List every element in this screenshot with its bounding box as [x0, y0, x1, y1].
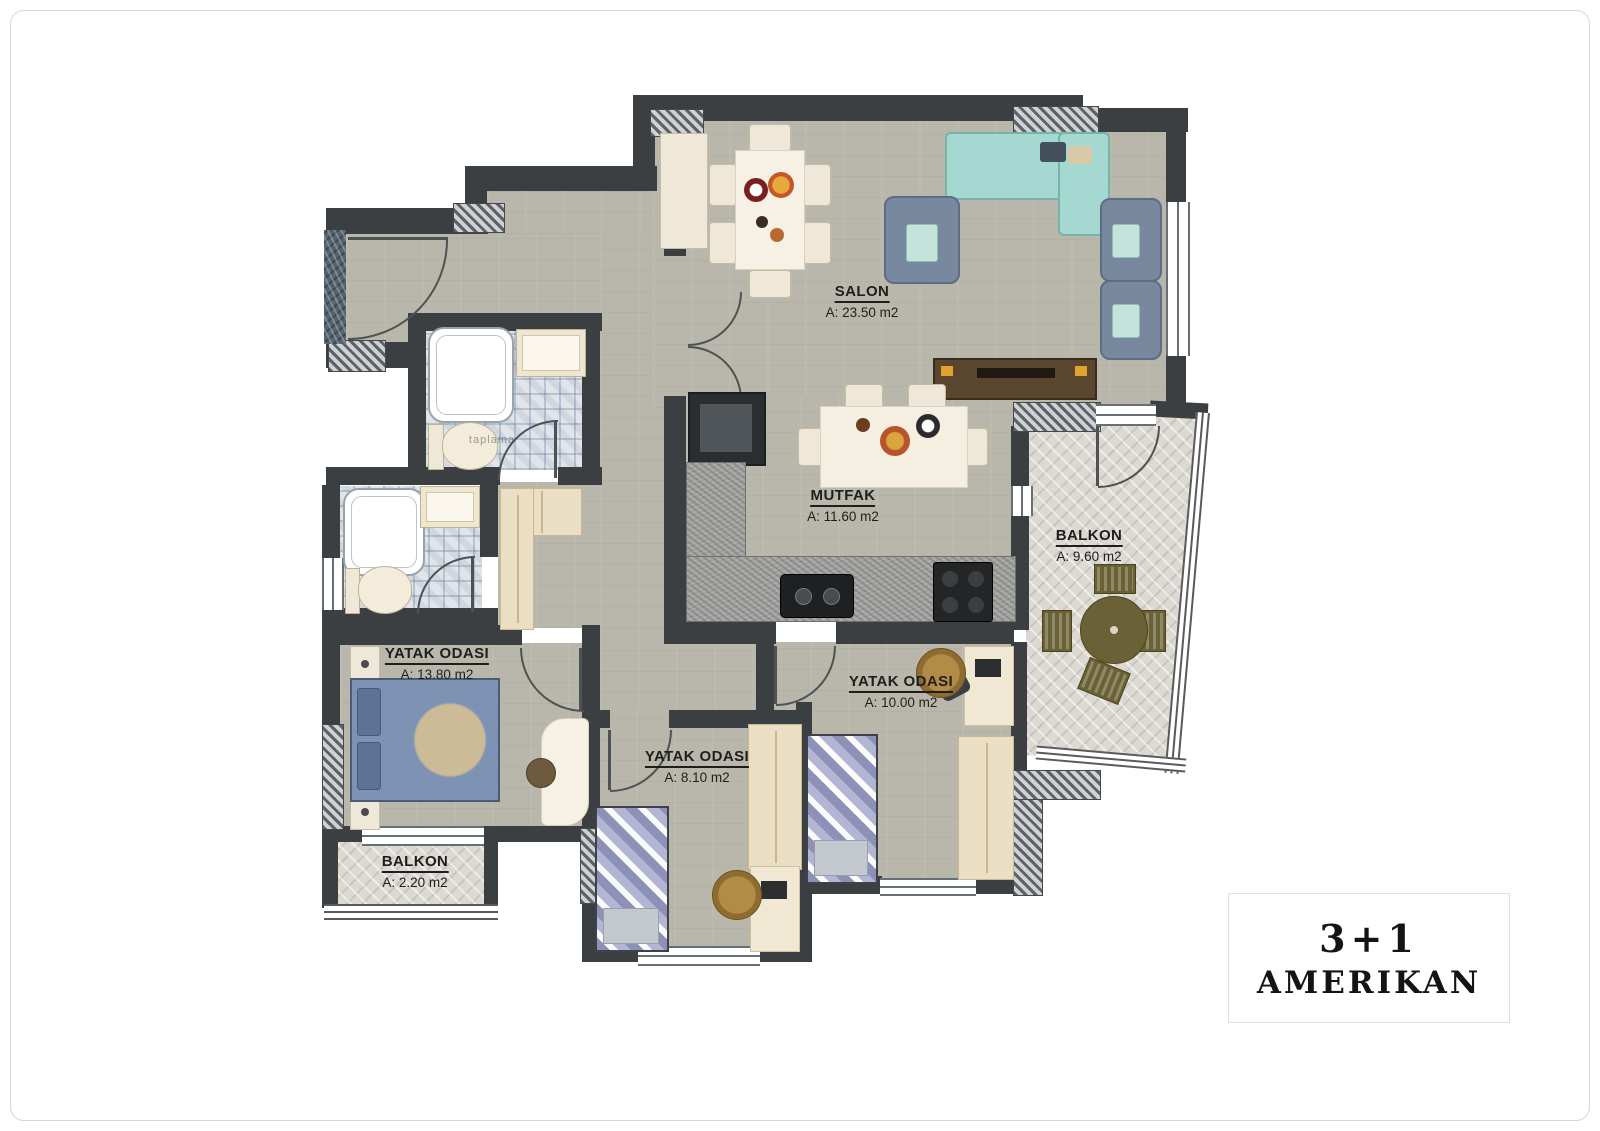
table-cup — [756, 216, 768, 228]
room-label-yatak-1: YATAK ODASI A: 13.80 m2 — [385, 645, 489, 682]
bathroom-sink — [420, 486, 480, 528]
room-label-yatak-3: YATAK ODASI A: 8.10 m2 — [645, 748, 749, 785]
wall-corridor-right-b — [664, 396, 686, 622]
balcony-chair — [1094, 564, 1136, 594]
room-name: YATAK ODASI — [849, 673, 953, 693]
wall-balcony-left-a — [1011, 426, 1029, 486]
desk-stool — [526, 758, 556, 788]
armchair — [1100, 198, 1162, 282]
double-bed — [350, 678, 500, 802]
column-hatch-bedroom1-left — [322, 724, 344, 830]
wall-right-upper — [1166, 126, 1186, 204]
tv-console-knob — [1075, 366, 1087, 376]
room-label-yatak-2: YATAK ODASI A: 10.00 m2 — [849, 673, 953, 710]
floor-plan-page: SALON A: 23.50 m2 MUTFAK A: 11.60 m2 BAL… — [0, 0, 1600, 1131]
wall-bedroom2-entry-stub — [756, 642, 774, 712]
bed-pillow — [357, 742, 381, 790]
kitchen-cup — [856, 418, 870, 432]
bed-pillow — [814, 840, 868, 876]
bathroom1-door-leaf — [554, 420, 557, 478]
wall-bathroom1-left — [408, 329, 426, 485]
laptop — [761, 881, 787, 899]
balcony-chair — [1042, 610, 1072, 652]
nightstand — [350, 646, 380, 682]
balcony-door-leaf — [1096, 426, 1099, 486]
column-hatch-top-right — [1013, 106, 1099, 134]
room-label-mutfak: MUTFAK A: 11.60 m2 — [807, 487, 879, 524]
railing-balcony-small — [324, 904, 498, 920]
wall-balcony-small-right — [484, 842, 498, 908]
sofa-pillow — [1040, 142, 1066, 162]
room-area: A: 9.60 m2 — [1056, 549, 1123, 564]
table-plate — [744, 178, 768, 202]
window-bathroom2-left — [322, 558, 344, 610]
room-name: BALKON — [1056, 527, 1123, 547]
wall-bedroom3-top-a — [598, 710, 610, 728]
sideboard — [660, 133, 708, 249]
toilet — [358, 566, 412, 614]
room-name: YATAK ODASI — [385, 645, 489, 665]
kitchen-sink — [780, 574, 854, 618]
armchair-cushion — [906, 224, 938, 262]
shower-tray — [343, 488, 425, 576]
window-balcony-top — [1096, 404, 1156, 426]
column-hatch-balcony-bottom-h — [1013, 770, 1101, 800]
plan-title-box: 3+1 AMERIKAN — [1228, 893, 1510, 1023]
bedroom1-door-leaf — [579, 648, 582, 710]
bed-pillow — [603, 908, 659, 944]
single-bed — [595, 806, 669, 952]
sink-basin — [795, 588, 812, 605]
room-label-balkon-large: BALKON A: 9.60 m2 — [1056, 527, 1123, 564]
tv-console-knob — [941, 366, 953, 376]
dining-chair — [709, 164, 737, 206]
balcony-table — [1080, 596, 1148, 664]
dining-chair — [709, 222, 737, 264]
balcony-table-center — [1110, 626, 1118, 634]
window-balcony-left — [1011, 486, 1033, 516]
fruit-plate — [768, 172, 794, 198]
bathroom2-door-leaf — [471, 556, 474, 612]
stove-burner — [942, 597, 958, 613]
bedroom2-door-leaf — [774, 646, 777, 704]
bedroom3-door-leaf — [608, 730, 611, 790]
nightstand-knob — [361, 660, 369, 668]
round-rug — [712, 870, 762, 920]
armchair — [1100, 280, 1162, 360]
armchair — [884, 196, 960, 284]
table-bowl — [770, 228, 784, 242]
refrigerator — [688, 392, 766, 466]
column-hatch-entry-bottom — [328, 340, 386, 372]
breakfast-plate — [916, 414, 940, 438]
room-name: BALKON — [382, 853, 449, 873]
wardrobe — [958, 736, 1014, 880]
room-name: YATAK ODASI — [645, 748, 749, 768]
fruit-bowl — [880, 426, 910, 456]
tv-console — [933, 358, 1097, 400]
dining-chair — [803, 222, 831, 264]
wall-entry-step-h — [485, 166, 657, 191]
dining-chair — [803, 164, 831, 206]
wall-bathroom2-left-a — [322, 485, 340, 560]
room-area: A: 13.80 m2 — [385, 667, 489, 682]
room-label-balkon-small: BALKON A: 2.20 m2 — [382, 853, 449, 890]
plan-type-title: 3+1 — [1319, 916, 1419, 961]
column-hatch-entry — [453, 203, 505, 233]
window-bedroom1-balcony — [362, 826, 484, 846]
armchair-cushion — [1112, 224, 1140, 258]
stove-cooktop — [933, 562, 993, 622]
stove-burner — [968, 571, 984, 587]
dining-table — [735, 150, 805, 270]
room-area: A: 23.50 m2 — [826, 305, 899, 320]
laptop — [975, 659, 1001, 677]
dining-chair — [749, 124, 791, 152]
window-salon-right — [1166, 202, 1190, 356]
room-area: A: 2.20 m2 — [382, 875, 449, 890]
nightstand-knob — [361, 808, 369, 816]
wall-bathroom2-right — [480, 485, 498, 557]
wall-bath-divider-b — [558, 467, 602, 485]
stove-burner — [968, 597, 984, 613]
bed-pillow — [357, 688, 381, 736]
entry-threshold — [324, 230, 346, 344]
shower-tray — [428, 327, 514, 423]
sink-basin — [823, 588, 840, 605]
wardrobe — [748, 724, 802, 870]
desk — [964, 646, 1014, 726]
room-name: SALON — [835, 283, 890, 303]
window-bedroom2-bottom — [880, 878, 976, 896]
wall-balcony-small-left — [322, 842, 338, 908]
room-label-salon: SALON A: 23.50 m2 — [826, 283, 899, 320]
hall-wardrobe-side — [500, 488, 534, 630]
toilet — [442, 422, 498, 470]
armchair-cushion — [1112, 304, 1140, 338]
room-area: A: 10.00 m2 — [849, 695, 953, 710]
entry-step-floor — [487, 188, 665, 234]
dining-chair — [749, 270, 791, 298]
bathroom-sink — [516, 329, 586, 377]
refrigerator-panel — [700, 404, 752, 452]
plan-type-subtitle: AMERIKAN — [1257, 965, 1481, 1001]
room-name: MUTFAK — [811, 487, 876, 507]
column-hatch-balcony-top — [1013, 402, 1101, 432]
room-area: A: 8.10 m2 — [645, 770, 749, 785]
tv-screen — [977, 368, 1055, 378]
sofa-pillow — [1068, 146, 1092, 164]
stove-burner — [942, 571, 958, 587]
watermark-text: taplama — [469, 434, 515, 446]
kitchen-counter-left — [686, 462, 746, 562]
wall-bedroom1-top-a — [322, 625, 522, 645]
room-area: A: 11.60 m2 — [807, 509, 879, 524]
single-bed — [806, 734, 878, 884]
